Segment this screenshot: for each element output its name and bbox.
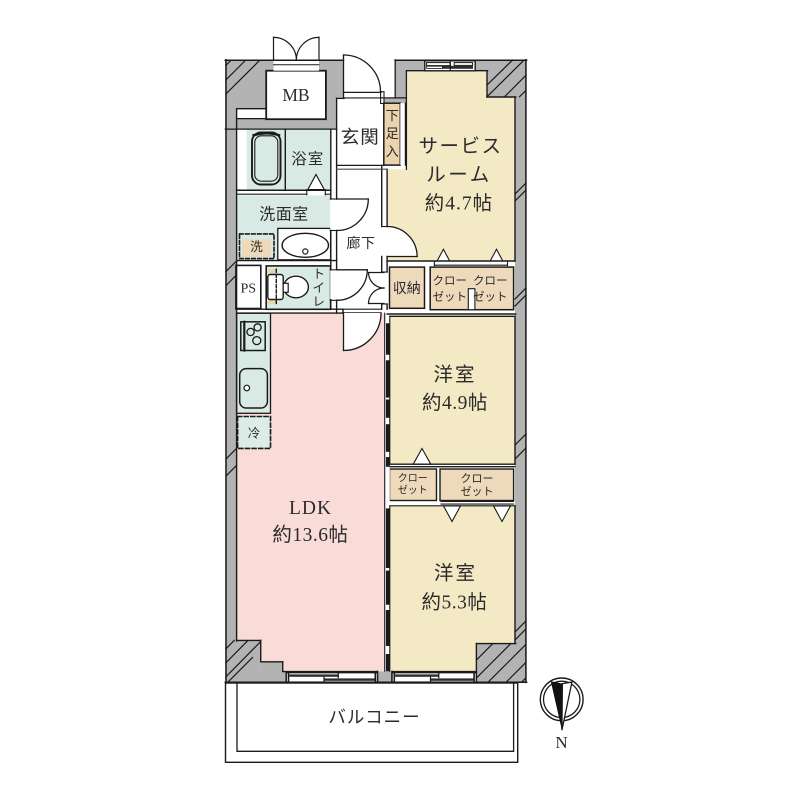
svg-text:バルコニー: バルコニー <box>328 707 420 727</box>
svg-text:クロー: クロー <box>461 472 494 485</box>
svg-text:洋室: 洋室 <box>434 563 477 585</box>
svg-text:約5.3帖: 約5.3帖 <box>422 592 488 614</box>
svg-text:約4.9帖: 約4.9帖 <box>422 392 488 414</box>
svg-text:ゼット: ゼット <box>473 291 508 304</box>
svg-text:PS: PS <box>241 282 257 297</box>
svg-text:洋室: 洋室 <box>433 364 476 386</box>
svg-text:レ: レ <box>313 295 326 309</box>
svg-text:クロー: クロー <box>473 275 508 288</box>
svg-text:収納: 収納 <box>393 281 421 297</box>
svg-text:N: N <box>555 733 567 752</box>
svg-text:洗: 洗 <box>250 240 263 254</box>
svg-text:下: 下 <box>386 108 399 123</box>
svg-text:玄関: 玄関 <box>341 128 380 149</box>
svg-text:浴室: 浴室 <box>291 150 324 168</box>
svg-text:ゼット: ゼット <box>433 291 468 304</box>
svg-text:約4.7帖: 約4.7帖 <box>425 193 493 215</box>
svg-text:LDK: LDK <box>289 498 332 519</box>
svg-text:ト: ト <box>313 267 326 281</box>
svg-text:ルーム: ルーム <box>426 165 491 186</box>
svg-text:イ: イ <box>313 281 326 295</box>
svg-text:サービス: サービス <box>418 136 502 158</box>
svg-text:約13.6帖: 約13.6帖 <box>272 524 348 546</box>
svg-text:入: 入 <box>386 144 399 159</box>
svg-text:ゼット: ゼット <box>398 485 428 497</box>
svg-text:洗面室: 洗面室 <box>259 206 309 224</box>
svg-text:クロー: クロー <box>398 473 428 485</box>
svg-text:冷: 冷 <box>248 427 261 441</box>
svg-text:ゼット: ゼット <box>461 485 494 498</box>
svg-text:廊下: 廊下 <box>347 235 376 252</box>
svg-text:MB: MB <box>282 85 309 105</box>
svg-text:クロー: クロー <box>433 275 468 288</box>
svg-text:足: 足 <box>386 126 399 141</box>
